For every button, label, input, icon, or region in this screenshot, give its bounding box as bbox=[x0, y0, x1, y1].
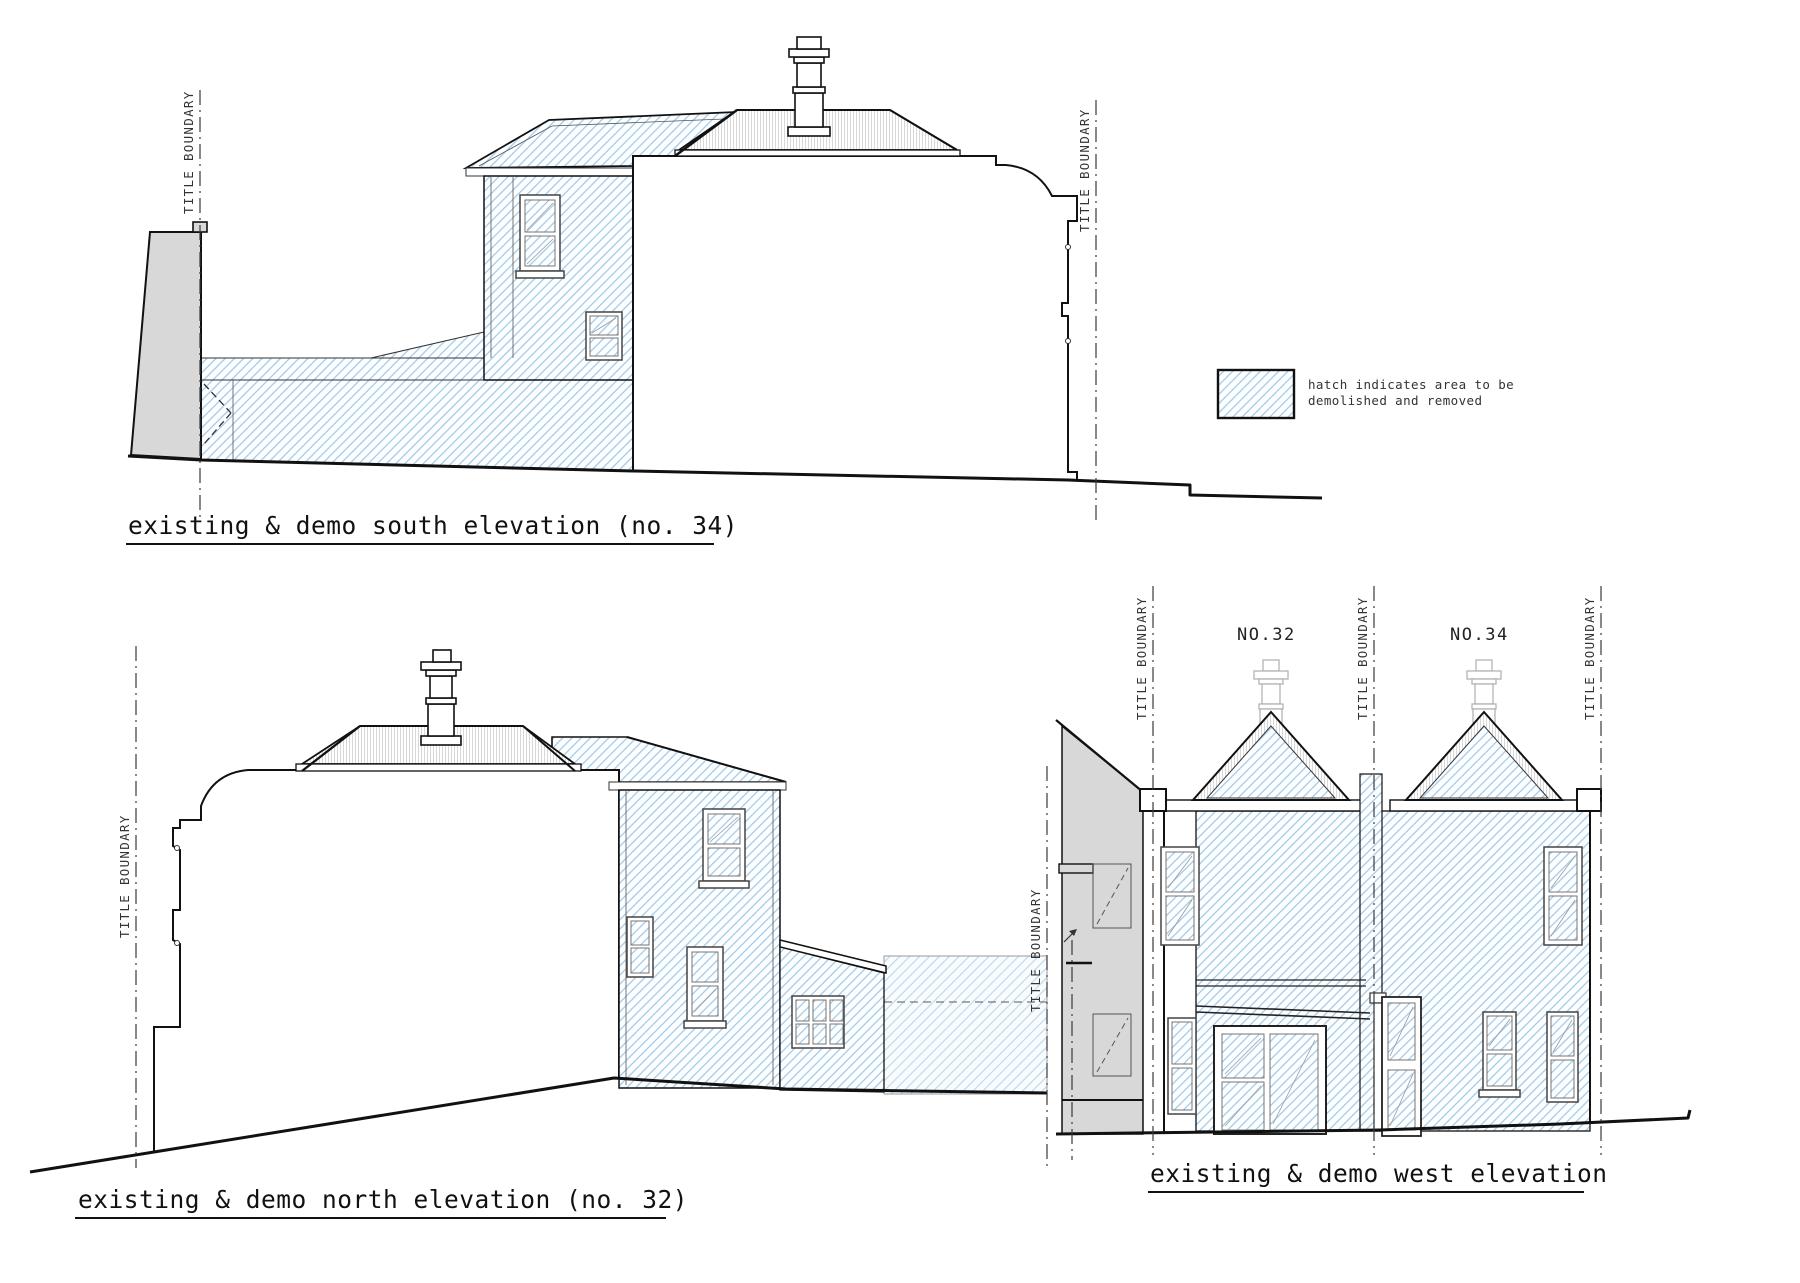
west-no32-shopfront-window bbox=[1214, 1026, 1326, 1134]
north-main-house bbox=[154, 650, 619, 1152]
south-wing-wall-hatched bbox=[201, 380, 633, 471]
west-no34-gable bbox=[1406, 712, 1562, 800]
south-chimney bbox=[788, 37, 830, 136]
window-sill bbox=[699, 881, 749, 888]
north-title-boundary-left-label: TITLE BOUNDARY bbox=[117, 814, 132, 938]
legend-hatch-swatch bbox=[1218, 370, 1294, 418]
west-no34-door bbox=[1382, 997, 1421, 1136]
south-main-wall-with-parapet bbox=[633, 156, 1077, 480]
window-sill bbox=[1479, 1090, 1520, 1097]
south-elevation-title: existing & demo south elevation (no. 34) bbox=[128, 511, 738, 540]
west-title-boundary-right-label: TITLE BOUNDARY bbox=[1582, 596, 1597, 720]
west-no34-window-right bbox=[1547, 1012, 1578, 1102]
north-leanto-window bbox=[792, 996, 844, 1048]
north-title-boundary-right-label: TITLE BOUNDARY bbox=[1028, 888, 1043, 1012]
north-main-wall-with-parapet bbox=[154, 770, 619, 1152]
west-title-boundary-mid-label: TITLE BOUNDARY bbox=[1355, 596, 1370, 720]
south-leanto-roof-slope bbox=[371, 332, 484, 358]
north-rear-wing-hatched bbox=[884, 956, 1047, 1094]
window-sill bbox=[684, 1021, 726, 1028]
south-main-eaves bbox=[675, 150, 960, 156]
south-title-boundary-left-label: TITLE BOUNDARY bbox=[181, 90, 196, 214]
west-elevation-drawing: TITLE BOUNDARY TITLE BOUNDARY TITLE BOUN… bbox=[1056, 586, 1690, 1192]
south-extension-eaves-fascia bbox=[466, 168, 633, 176]
west-no34-upper-window bbox=[1544, 847, 1582, 945]
north-demo-leanto bbox=[780, 940, 1047, 1094]
parapet-detail-circle bbox=[175, 941, 180, 946]
window-sill bbox=[516, 271, 564, 278]
parapet-detail-circle bbox=[1066, 339, 1071, 344]
legend-text-line2: demolished and removed bbox=[1308, 393, 1482, 408]
west-right-parapet-box bbox=[1577, 789, 1601, 811]
west-no34-eaves bbox=[1390, 800, 1592, 811]
south-neighbour-section-wall bbox=[131, 222, 207, 459]
west-no32-gable bbox=[1193, 712, 1349, 800]
legend-text-line1: hatch indicates area to be bbox=[1308, 377, 1514, 392]
west-no32-label: NO.32 bbox=[1237, 625, 1296, 645]
west-no34-window-mid bbox=[1479, 1012, 1520, 1097]
north-elevation-title: existing & demo north elevation (no. 32) bbox=[78, 1185, 688, 1214]
south-extension-upper-window bbox=[516, 195, 564, 278]
neighbour-ledge bbox=[1059, 864, 1093, 873]
south-main-house bbox=[633, 37, 1077, 480]
north-extension-narrow-window bbox=[627, 917, 653, 977]
drawing-sheet: TITLE BOUNDARY TITLE BOUNDARY existing &… bbox=[0, 0, 1800, 1283]
west-title-boundary-left-label: TITLE BOUNDARY bbox=[1134, 596, 1149, 720]
elevations-canvas: TITLE BOUNDARY TITLE BOUNDARY existing &… bbox=[0, 0, 1800, 1283]
west-elevation-title: existing & demo west elevation bbox=[1150, 1159, 1608, 1188]
north-demo-extension bbox=[609, 782, 786, 1088]
demolition-hatch-legend: hatch indicates area to be demolished an… bbox=[1218, 370, 1514, 418]
south-extension-lower-window bbox=[586, 312, 622, 360]
west-no34-label: NO.34 bbox=[1450, 625, 1509, 645]
north-extension-upper-window bbox=[699, 809, 749, 888]
west-no32-upper-window bbox=[1161, 847, 1199, 945]
parapet-detail-circle bbox=[175, 846, 180, 851]
west-neighbour-section bbox=[1056, 720, 1143, 1134]
west-no32-eaves bbox=[1163, 800, 1365, 811]
south-elevation-drawing: TITLE BOUNDARY TITLE BOUNDARY existing &… bbox=[126, 37, 1322, 544]
north-extension-lower-window bbox=[684, 947, 726, 1028]
parapet-detail-circle bbox=[1066, 245, 1071, 250]
north-extension-eaves-fascia bbox=[609, 782, 786, 790]
north-elevation-drawing: TITLE BOUNDARY TITLE BOUNDARY existing &… bbox=[30, 646, 1047, 1218]
south-title-boundary-right-label: TITLE BOUNDARY bbox=[1077, 108, 1092, 232]
north-main-eaves bbox=[296, 764, 581, 771]
west-no32-narrow-window bbox=[1168, 1018, 1196, 1114]
